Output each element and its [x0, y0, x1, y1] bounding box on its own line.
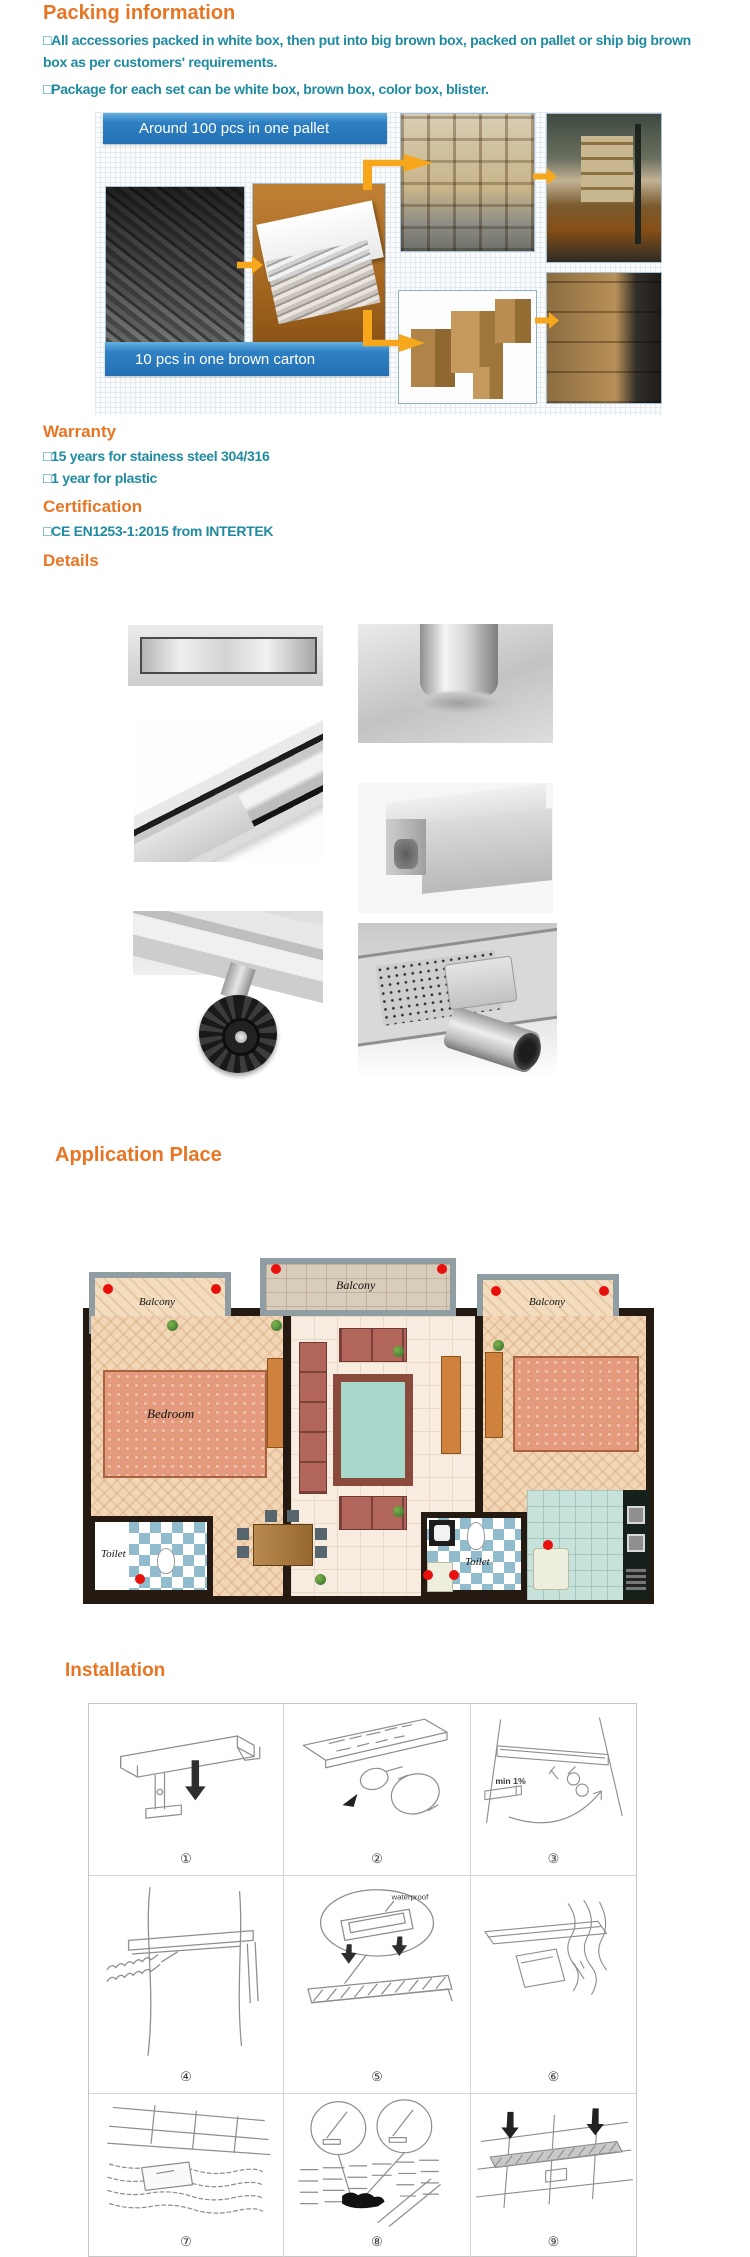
install-step-2-sketch [284, 1708, 470, 1848]
weld-ring [408, 690, 510, 716]
install-step-7: ⑦ [89, 2094, 284, 2257]
drain-point-dot [135, 1574, 145, 1584]
spout-opening [394, 839, 418, 869]
toilet-right-room: Toilet [421, 1512, 527, 1596]
carton-3 [495, 299, 531, 343]
waterproof-annotation: waterproof [391, 1892, 430, 1901]
drain-point-dot [543, 1540, 553, 1550]
crate-on-forklift [581, 136, 633, 202]
toilet-left-room: Toilet [89, 1516, 213, 1596]
rug [333, 1374, 413, 1486]
balcony-left-label: Balcony [139, 1296, 175, 1308]
install-step-8: ⑧ [284, 2094, 471, 2257]
kitchen-counter [623, 1490, 649, 1600]
drain-point-dot [449, 1570, 459, 1580]
detail-photo-perforated-body [358, 923, 557, 1078]
step-number: ⑤ [284, 2069, 470, 2085]
plant [271, 1320, 282, 1331]
install-step-8-sketch [284, 2098, 470, 2230]
packing-title: Packing information [43, 2, 235, 25]
detail-photo-adjustable-foot [133, 911, 323, 1080]
step-number: ① [89, 1851, 283, 1867]
sink-basin [434, 1525, 450, 1541]
carton-1 [411, 329, 455, 387]
toilet-left-label: Toilet [101, 1548, 126, 1560]
install-step-6: ⑥ [471, 1876, 636, 2094]
detail-photo-channel-angled [134, 720, 323, 862]
chair [237, 1546, 249, 1558]
flow-arrow-elbow [363, 310, 372, 342]
box-front-face [422, 808, 552, 894]
install-step-1-sketch [89, 1708, 283, 1848]
photo-wooden-crates [400, 113, 535, 252]
installation-steps-grid: ① ② [88, 1703, 637, 2257]
balcony-right-label: Balcony [529, 1296, 565, 1308]
drain-point-dot [103, 1284, 113, 1294]
carton-4 [473, 367, 503, 399]
plant [167, 1320, 178, 1331]
chair [237, 1528, 249, 1540]
install-step-9-sketch [471, 2098, 636, 2230]
stove [627, 1534, 645, 1552]
install-step-9: ⑨ [471, 2094, 636, 2257]
dining-table [253, 1524, 313, 1566]
certification-title: Certification [43, 497, 142, 517]
chair [315, 1546, 327, 1558]
drain-point-dot [423, 1570, 433, 1580]
bed-left [103, 1370, 267, 1478]
drain-point-dot [599, 1286, 609, 1296]
foot-bolt [235, 1031, 247, 1043]
step-number: ⑦ [89, 2234, 283, 2250]
plant [315, 1574, 326, 1585]
forklift-mast [635, 124, 641, 244]
pipe-mouth [509, 1029, 545, 1073]
drain-point-dot [211, 1284, 221, 1294]
chair [265, 1510, 277, 1522]
vent [626, 1568, 646, 1590]
toilet-bowl-left [157, 1548, 175, 1574]
bedroom-label: Bedroom [147, 1406, 194, 1422]
install-step-5: waterproof ⑤ [284, 1876, 471, 2094]
install-step-2: ② [284, 1704, 471, 1876]
install-step-4: ④ [89, 1876, 284, 2094]
cabinet-living [441, 1356, 461, 1454]
cover-plate [444, 955, 518, 1010]
toilet-bowl-right [467, 1522, 485, 1550]
packing-bullet-2: □Package for each set can be white box, … [43, 78, 695, 100]
foot-wheel [199, 995, 277, 1073]
warranty-bullet-1: □15 years for stainess steel 304/316 [43, 448, 269, 464]
install-step-4-sketch [89, 1880, 283, 2065]
photo-forklift-loading [546, 113, 662, 263]
pallet-banner: Around 100 pcs in one pallet [103, 113, 387, 144]
warranty-title: Warranty [43, 422, 116, 442]
bed-right [513, 1356, 639, 1452]
drain-point-dot [491, 1286, 501, 1296]
carton-banner-label: 10 pcs in one brown carton [135, 351, 315, 368]
application-title: Application Place [55, 1144, 222, 1167]
step-number: ④ [89, 2069, 283, 2085]
chair [287, 1510, 299, 1522]
min-slope-annotation: min 1% [495, 1776, 526, 1786]
warranty-bullet-2: □1 year for plastic [43, 470, 157, 486]
packing-bullet-1: □All accessories packed in white box, th… [43, 29, 695, 73]
certification-bullet-1: □CE EN1253-1:2015 from INTERTEK [43, 523, 273, 539]
step-number: ⑨ [471, 2234, 636, 2250]
floor-plan: Balcony Balcony Balcony Bedroom [75, 1258, 662, 1612]
install-step-5-sketch: waterproof [284, 1880, 470, 2065]
details-title: Details [43, 551, 99, 571]
step-number: ② [284, 1851, 470, 1867]
step-number: ⑧ [284, 2234, 470, 2250]
drain-point-dot [437, 1264, 447, 1274]
foot-hub [222, 1018, 260, 1056]
packing-collage: Around 100 pcs in one pallet 10 pcs in o… [95, 112, 662, 415]
step-number: ⑥ [471, 2069, 636, 2085]
carton-banner: 10 pcs in one brown carton [105, 342, 389, 376]
balcony-top: Balcony [260, 1258, 456, 1316]
detail-photo-channel-top-view [128, 625, 323, 686]
detail-photo-round-pipe [358, 624, 553, 743]
install-step-6-sketch [471, 1880, 636, 2065]
sink-counter-right [429, 1520, 455, 1546]
installation-title: Installation [65, 1660, 165, 1682]
pallet-banner-label: Around 100 pcs in one pallet [139, 120, 329, 137]
kitchen-island [533, 1548, 569, 1590]
photo-drain-channels-stacked [105, 186, 245, 344]
detail-photo-square-outlet [358, 783, 553, 913]
install-step-3-sketch: min 1% [471, 1708, 636, 1848]
install-step-1: ① [89, 1704, 284, 1876]
install-step-3: min 1% ③ [471, 1704, 636, 1876]
toilet-right-label: Toilet [465, 1556, 490, 1568]
sofa-long [299, 1342, 327, 1494]
product-detail-page: Packing information □All accessories pac… [0, 0, 750, 2257]
photo-brown-cartons [398, 290, 537, 404]
drain-point-dot [271, 1264, 281, 1274]
step-number: ③ [471, 1851, 636, 1867]
balcony-top-label: Balcony [336, 1278, 375, 1293]
stove [627, 1506, 645, 1524]
plant [393, 1346, 404, 1357]
wardrobe-right [485, 1352, 503, 1438]
chair [315, 1528, 327, 1540]
plant [393, 1506, 404, 1517]
install-step-7-sketch [89, 2098, 283, 2230]
channel-inner [140, 637, 317, 674]
plant [493, 1340, 504, 1351]
photo-cartons-pallet [546, 272, 662, 404]
